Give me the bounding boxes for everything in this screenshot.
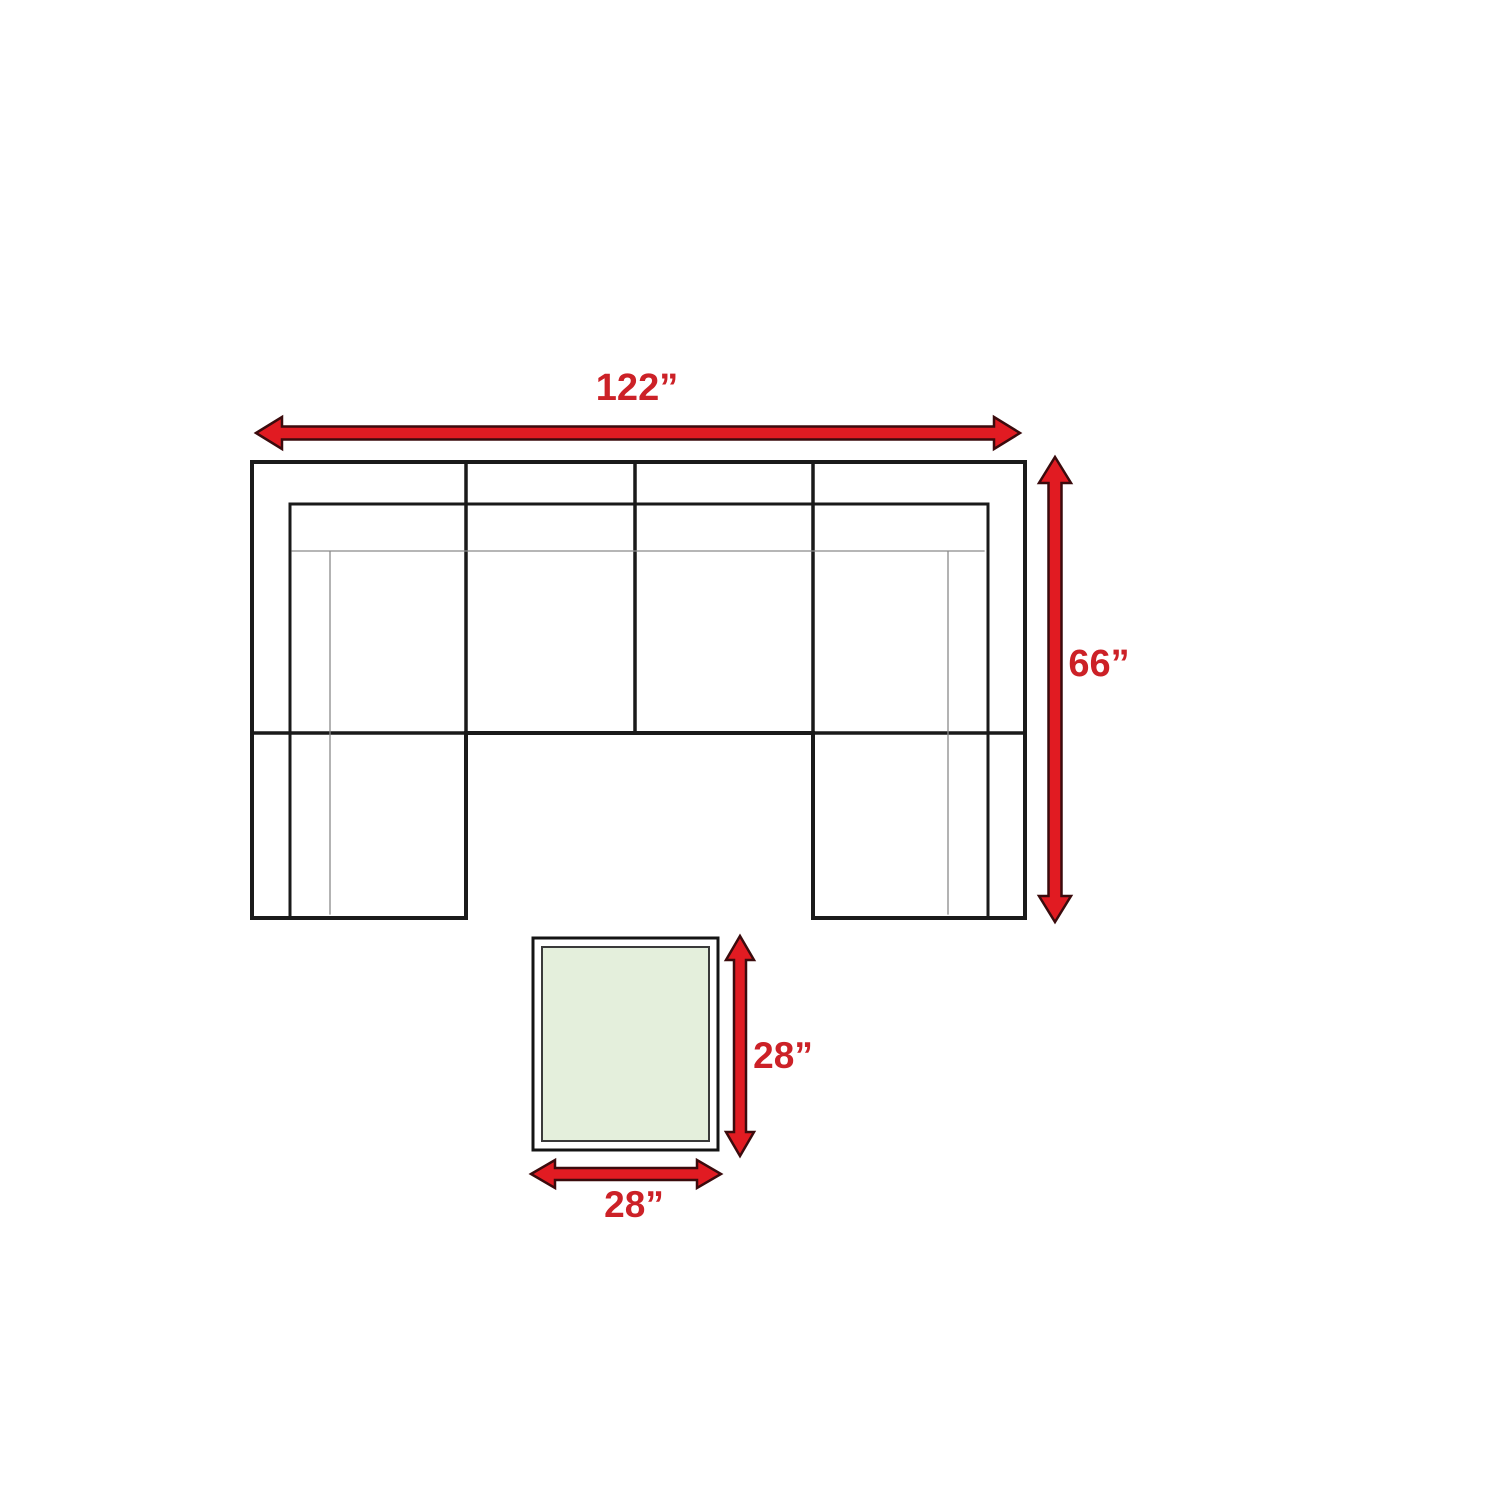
sofa-outline: [252, 462, 1025, 918]
ottoman-height-double-arrow-icon: [726, 936, 754, 1156]
depth-double-arrow-icon: [1039, 457, 1071, 922]
diagram-canvas: 122” 66” 28” 28”: [0, 0, 1500, 1500]
sofa-backrest-inner-line: [290, 504, 988, 916]
ottoman-width-label: 28”: [604, 1184, 664, 1225]
sofa-width-label: 122”: [596, 367, 678, 409]
sofa-depth-label: 66”: [1068, 643, 1129, 685]
sofa-width-dimension: 122”: [256, 367, 1020, 449]
ottoman-height-dimension: 28”: [726, 936, 813, 1156]
ottoman-height-label: 28”: [753, 1035, 813, 1076]
ottoman: [533, 938, 718, 1150]
sectional-sofa: [252, 462, 1025, 918]
width-double-arrow-icon: [256, 417, 1020, 449]
sofa-depth-dimension: 66”: [1039, 457, 1130, 922]
ottoman-top-surface: [542, 947, 709, 1141]
furniture-dimension-diagram: 122” 66” 28” 28”: [0, 0, 1500, 1500]
ottoman-width-dimension: 28”: [531, 1160, 721, 1225]
